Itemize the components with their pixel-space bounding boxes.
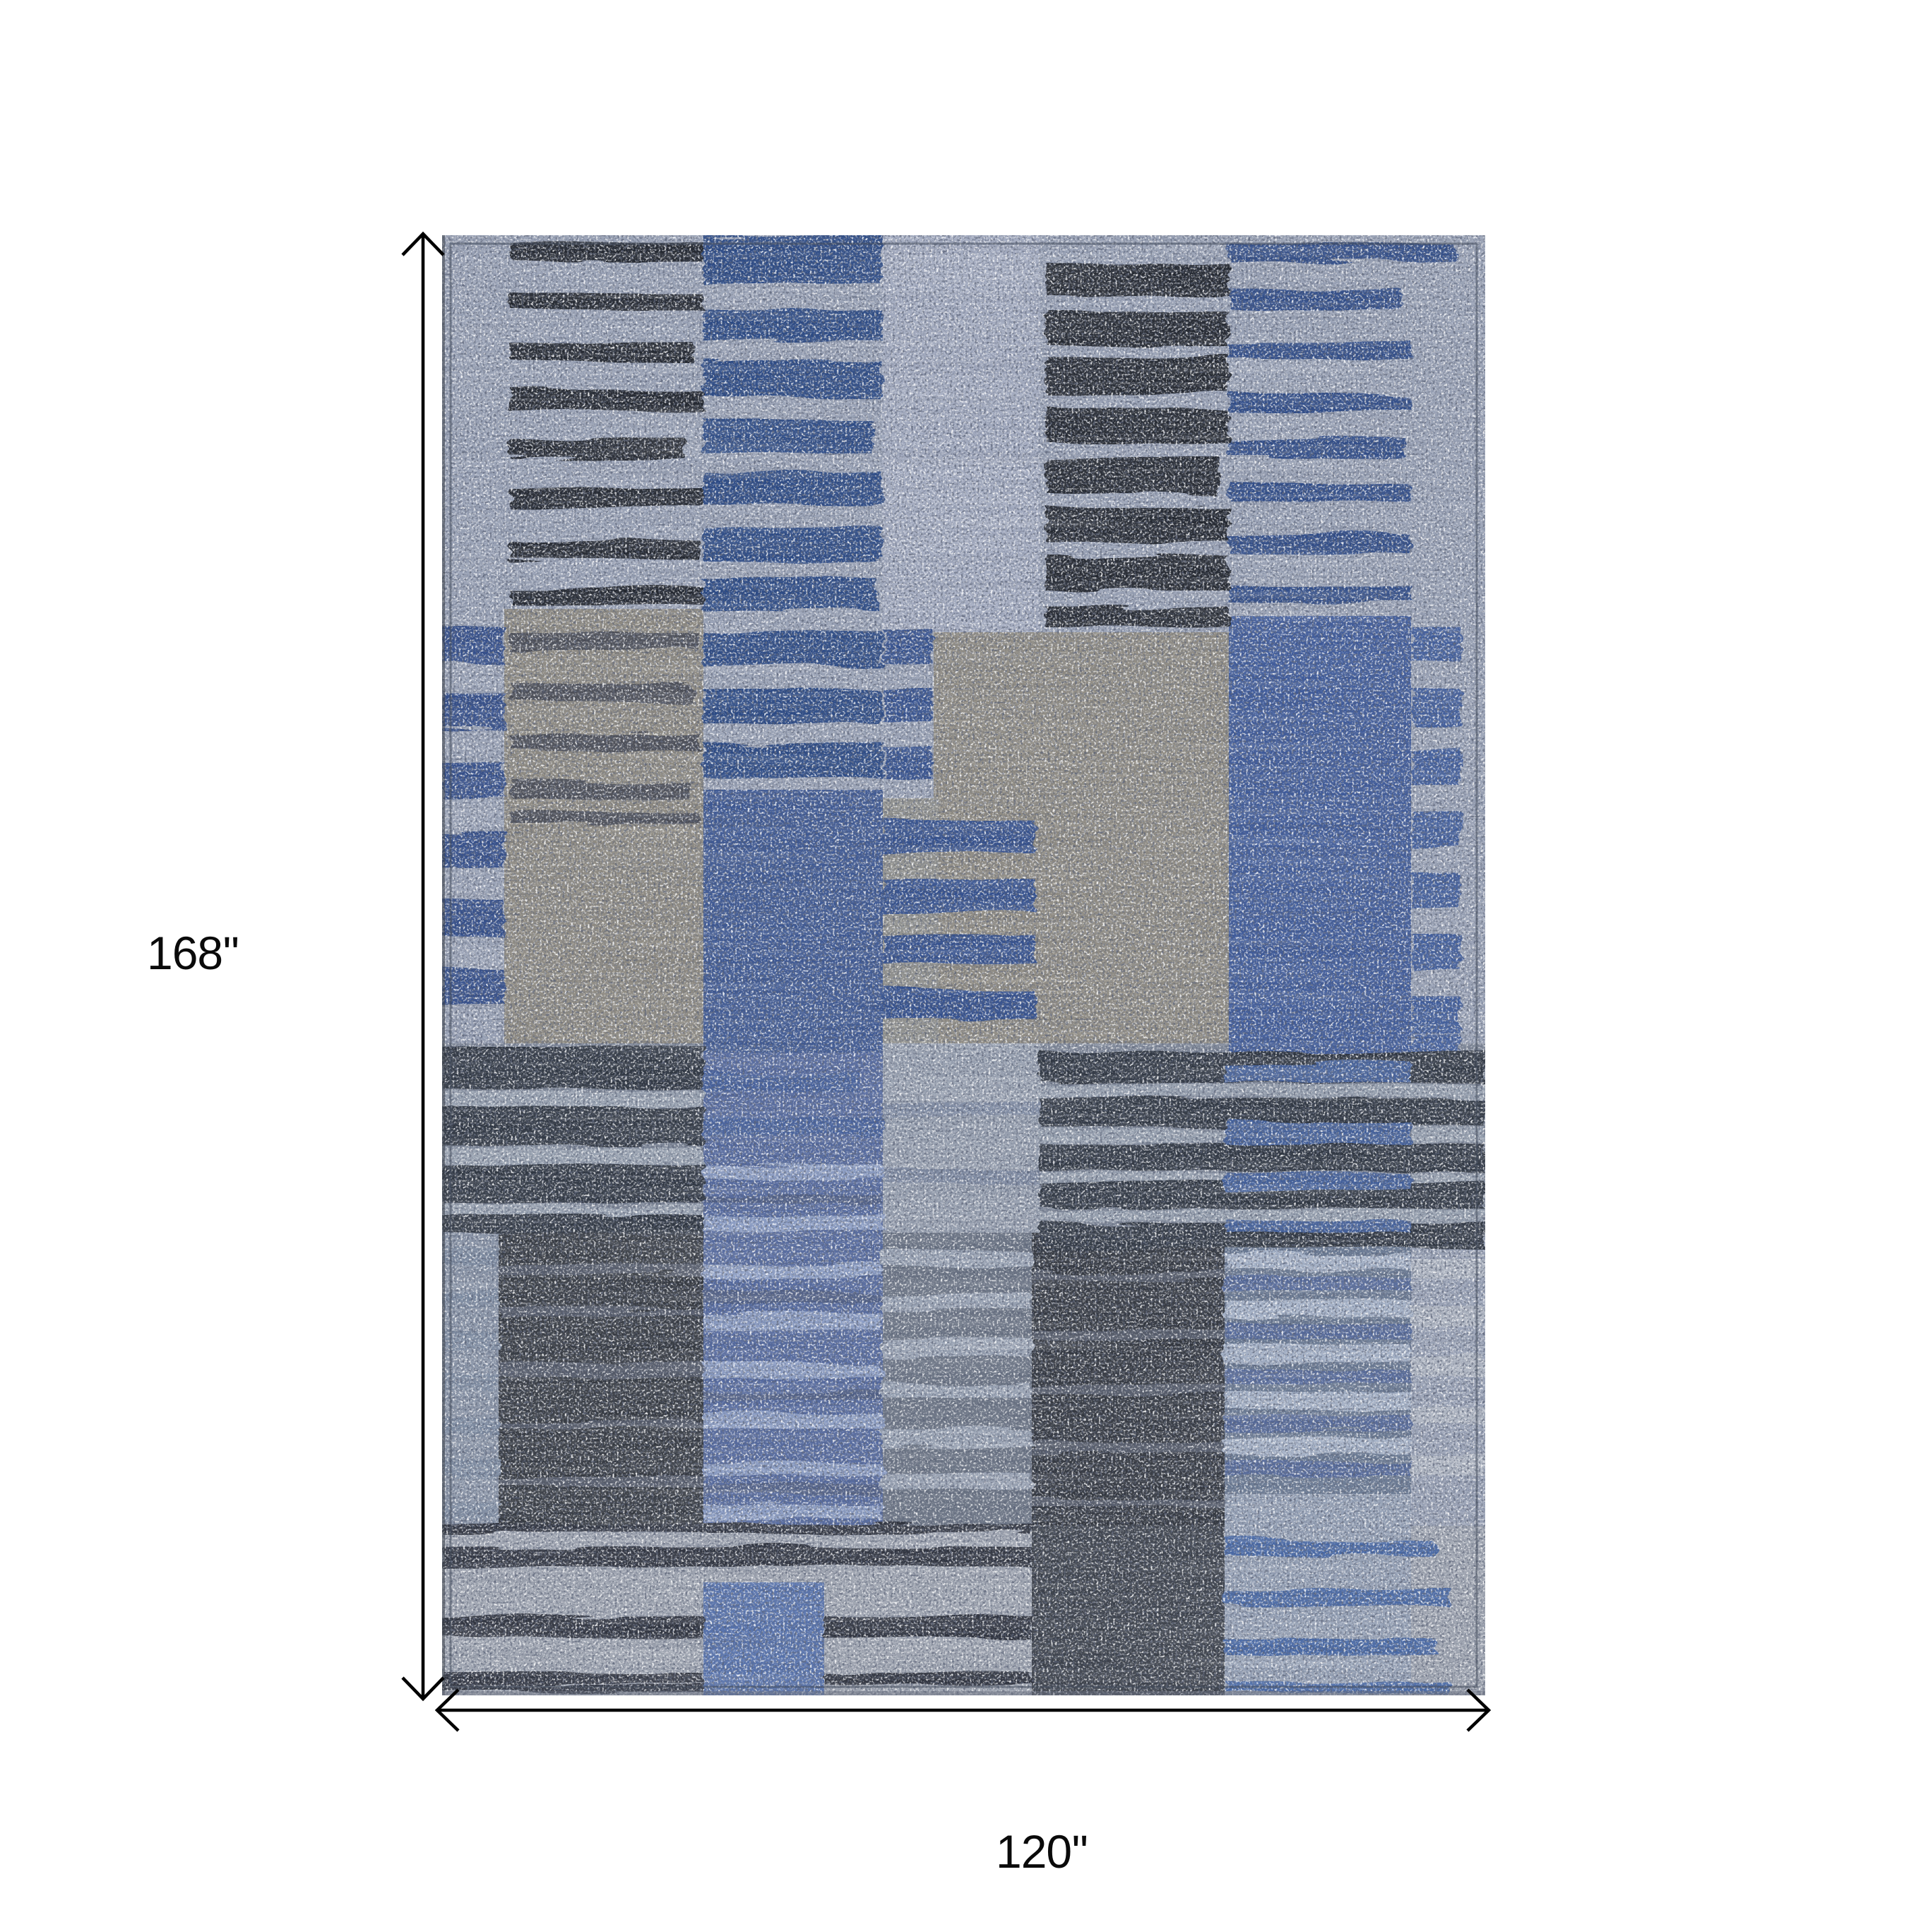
svg-text:120'': 120'' [996,1825,1088,1878]
svg-text:168'': 168'' [147,927,239,979]
